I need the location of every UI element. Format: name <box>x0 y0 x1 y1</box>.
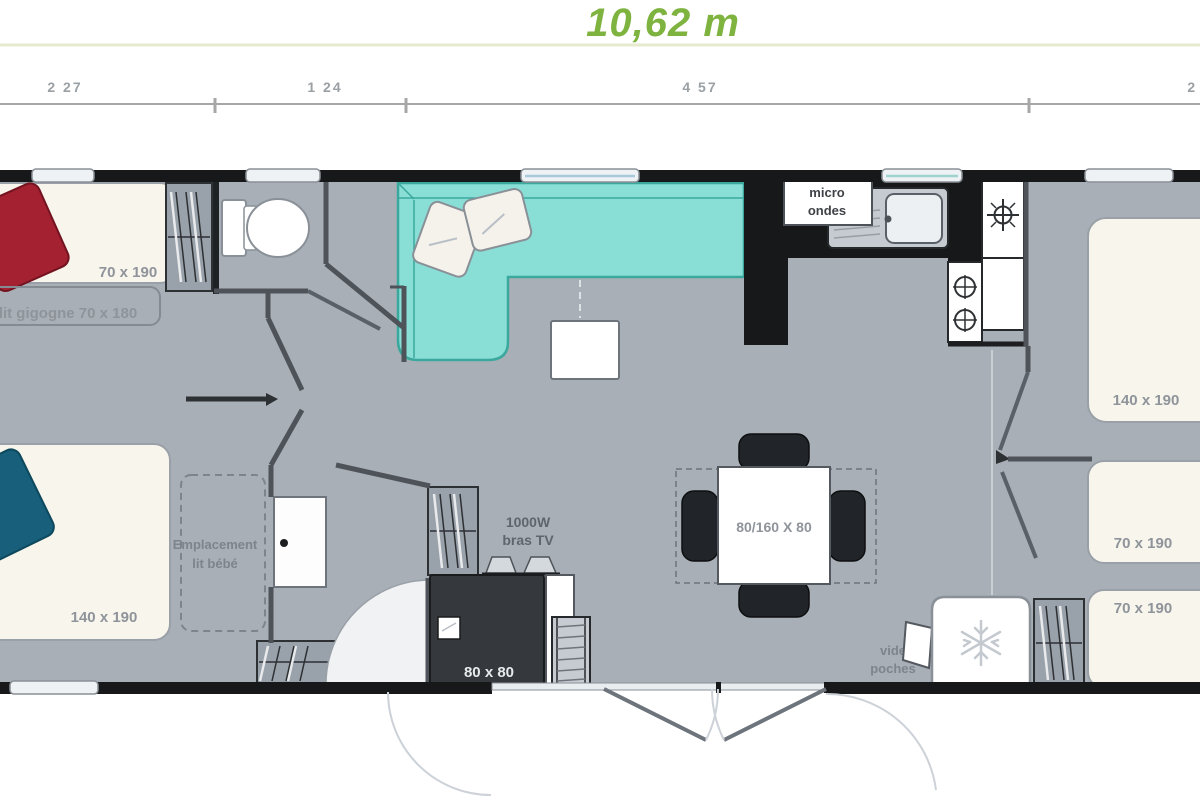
shower-label: 80 x 80 <box>464 664 514 681</box>
baby-bed-label-2: lit bébé <box>192 556 238 571</box>
chair-top <box>739 434 809 470</box>
vide-poches-label-1: vide <box>880 643 906 658</box>
vide-poches-label-2: poches <box>870 661 916 676</box>
single-bed-right-2-label: 70 x 190 <box>1114 600 1172 617</box>
wardrobe-right <box>1034 599 1084 687</box>
chair-bottom <box>739 581 809 617</box>
wardrobe-center <box>428 487 478 575</box>
dimension-label-2: 1 24 <box>307 79 342 95</box>
total-length-title: 10,62 m <box>586 1 740 45</box>
window-top-5 <box>1085 169 1173 182</box>
tv-bracket-label-2: bras TV <box>502 532 554 548</box>
window-top-2 <box>246 169 320 182</box>
tv-bracket-label-1: 1000W <box>506 514 551 530</box>
kitchen-wall-pillar <box>744 180 788 345</box>
window-bottom-1 <box>10 681 98 694</box>
bay-door <box>492 682 829 740</box>
kitchen-cabinet <box>982 180 1024 330</box>
microwave-label-1: micro <box>809 185 844 200</box>
vide-poches-shelf <box>903 622 932 668</box>
wardrobe-bottom-left <box>257 641 335 685</box>
door-handle-dot <box>280 539 288 547</box>
chair-right <box>829 491 865 561</box>
hob <box>948 262 982 342</box>
bay-door-leaf-left <box>604 689 706 740</box>
sink-tap <box>885 216 892 223</box>
window-top-1 <box>32 169 94 182</box>
toilet-bowl <box>247 199 309 257</box>
wc-room <box>222 199 309 257</box>
baby-bed-label-1: Emplacement <box>173 537 258 552</box>
wardrobe-top-left <box>166 183 212 291</box>
dimension-label-3: 4 57 <box>682 79 717 95</box>
tv-bracket-1 <box>486 557 516 573</box>
double-bed-right-label: 140 x 190 <box>1113 392 1180 409</box>
trundle-bed-label: lit gigogne 70 x 180 <box>0 305 137 322</box>
toilet-tank <box>222 200 246 256</box>
dining-table-label: 80/160 X 80 <box>736 519 812 535</box>
floorplan-svg: 10,62 m 2 27 1 24 4 57 2 54 70 x 190 lit… <box>0 0 1200 800</box>
single-bed-right-1-label: 70 x 190 <box>1114 535 1172 552</box>
dimension-label-1: 2 27 <box>47 79 82 95</box>
chair-left <box>682 491 718 561</box>
coffee-table <box>551 321 619 379</box>
floorplan-page: 10,62 m 2 27 1 24 4 57 2 54 70 x 190 lit… <box>0 0 1200 800</box>
vent-symbol-icon <box>987 199 1019 231</box>
microwave-label-2: ondes <box>808 203 846 218</box>
dimension-label-4: 2 54 <box>1187 79 1200 95</box>
double-bed-left-label: 140 x 190 <box>71 609 138 626</box>
shower-drain <box>438 617 460 639</box>
water-heater <box>552 617 590 687</box>
dimension-line <box>0 98 1200 113</box>
exterior-wall-bottom-right <box>828 682 1200 694</box>
bay-door-leaf-right <box>724 689 826 740</box>
single-bed-top-label: 70 x 190 <box>99 264 157 281</box>
door-swing-arcs <box>388 689 936 795</box>
